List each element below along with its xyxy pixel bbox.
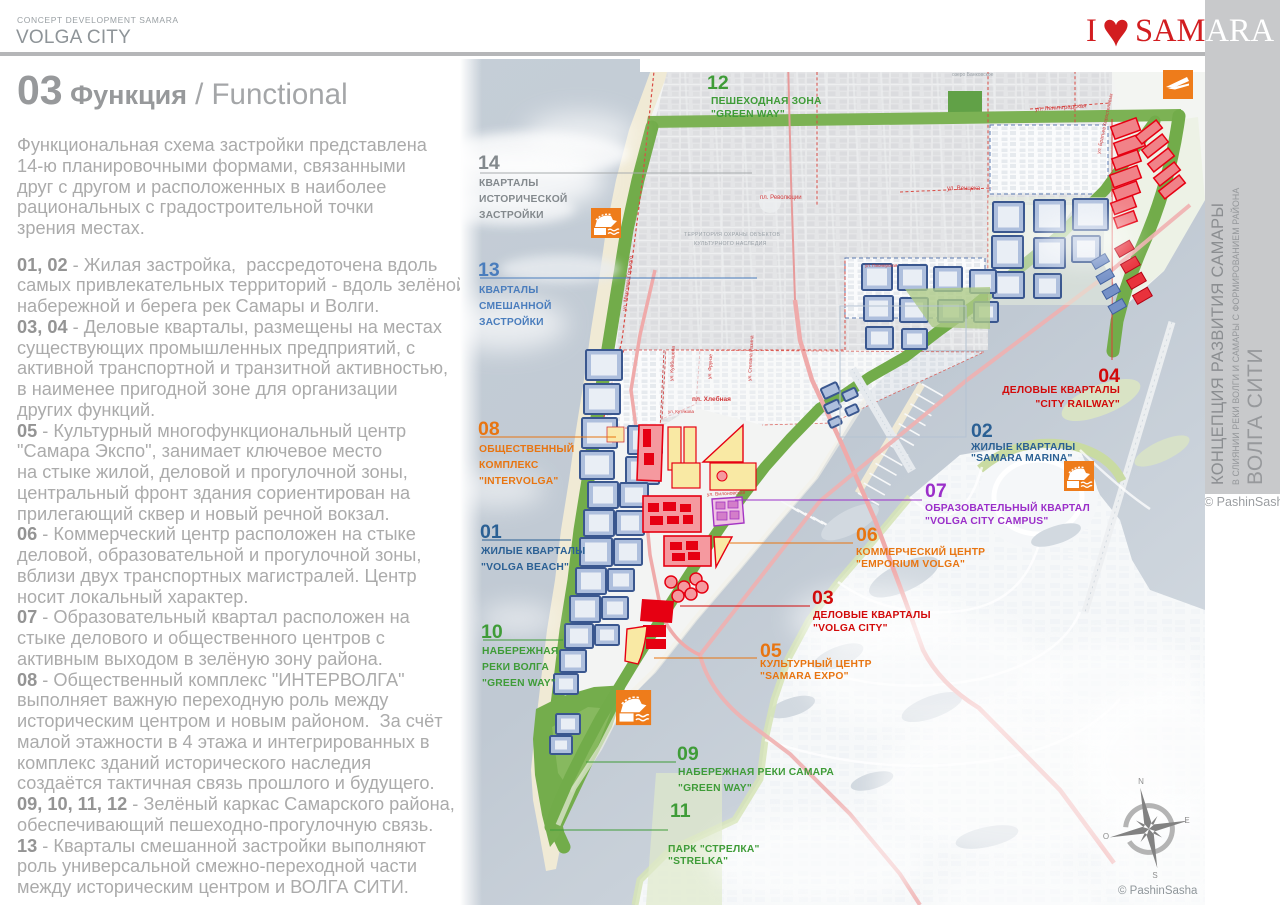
svg-text:02: 02 xyxy=(971,420,993,442)
svg-text:ул. Кутякова: ул. Кутякова xyxy=(668,409,695,414)
svg-text:ПАРК "СТРЕЛКА": ПАРК "СТРЕЛКА" xyxy=(668,844,760,855)
svg-text:РЕКИ ВОЛГА: РЕКИ ВОЛГА xyxy=(482,662,549,673)
svg-text:12: 12 xyxy=(707,72,729,94)
svg-text:07: 07 xyxy=(925,480,947,502)
svg-text:03: 03 xyxy=(812,587,834,609)
svg-text:10: 10 xyxy=(481,621,503,643)
svg-text:"GREEN WAY": "GREEN WAY" xyxy=(678,783,752,794)
svg-text:"INTERVOLGA": "INTERVOLGA" xyxy=(479,476,558,487)
svg-text:S: S xyxy=(1152,871,1157,880)
svg-text:НАБЕРЕЖНАЯ: НАБЕРЕЖНАЯ xyxy=(482,646,558,657)
svg-text:"VOLGA CITY CAMPUS": "VOLGA CITY CAMPUS" xyxy=(925,516,1048,527)
svg-text:09: 09 xyxy=(677,743,699,765)
svg-text:O: O xyxy=(1103,832,1109,841)
svg-text:"STRELKA": "STRELKA" xyxy=(668,856,728,867)
svg-text:"CITY RAILWAY": "CITY RAILWAY" xyxy=(1035,399,1120,410)
svg-text:01: 01 xyxy=(480,521,502,543)
svg-text:ТЕРРИТОРИЯ ОХРАНЫ ОБЪЕКТОВ: ТЕРРИТОРИЯ ОХРАНЫ ОБЪЕКТОВ xyxy=(684,232,781,238)
svg-text:ЖИЛЫЕ КВАРТАЛЫ: ЖИЛЫЕ КВАРТАЛЫ xyxy=(480,546,585,557)
svg-text:"EMPORIUM VOLGA": "EMPORIUM VOLGA" xyxy=(856,559,965,570)
svg-text:НАБЕРЕЖНАЯ РЕКИ САМАРА: НАБЕРЕЖНАЯ РЕКИ САМАРА xyxy=(678,767,834,778)
svg-text:14: 14 xyxy=(478,152,500,174)
svg-text:"SAMARA MARINA": "SAMARA MARINA" xyxy=(971,453,1073,464)
svg-text:КВАРТАЛЫ: КВАРТАЛЫ xyxy=(479,178,539,189)
svg-text:КОММЕРЧЕСКИЙ ЦЕНТР: КОММЕРЧЕСКИЙ ЦЕНТР xyxy=(856,545,985,558)
svg-text:ул. Венцека: ул. Венцека xyxy=(947,186,981,192)
svg-text:13: 13 xyxy=(478,259,500,281)
svg-text:ИСТОРИЧЕСКОЙ: ИСТОРИЧЕСКОЙ xyxy=(479,192,568,205)
svg-text:"GREEN WAY": "GREEN WAY" xyxy=(482,678,556,689)
svg-text:КУЛЬТУРНЫЙ ЦЕНТР: КУЛЬТУРНЫЙ ЦЕНТР xyxy=(760,657,872,670)
svg-text:"VOLGA BEACH": "VOLGA BEACH" xyxy=(481,562,569,573)
svg-text:пл. Хлебная: пл. Хлебная xyxy=(692,395,731,403)
svg-text:© PashinSasha: © PashinSasha xyxy=(1118,885,1198,897)
svg-text:08: 08 xyxy=(478,418,500,440)
svg-text:"VOLGA CITY": "VOLGA CITY" xyxy=(813,623,888,634)
svg-text:ЗАСТРОЙКИ: ЗАСТРОЙКИ xyxy=(479,315,544,328)
svg-text:КУЛЬТУРНОГО НАСЛЕДИЯ: КУЛЬТУРНОГО НАСЛЕДИЯ xyxy=(694,241,767,247)
svg-text:ЗАСТРОЙКИ: ЗАСТРОЙКИ xyxy=(479,208,544,221)
svg-text:N: N xyxy=(1138,777,1144,786)
svg-text:ДЕЛОВЫЕ КВАРТАЛЫ: ДЕЛОВЫЕ КВАРТАЛЫ xyxy=(1002,385,1120,396)
svg-text:ПЕШЕХОДНАЯ ЗОНА: ПЕШЕХОДНАЯ ЗОНА xyxy=(711,96,822,107)
svg-text:"SAMARA EXPO": "SAMARA EXPO" xyxy=(760,671,849,682)
svg-text:06: 06 xyxy=(856,524,878,546)
svg-text:ОБЩЕСТВЕННЫЙ: ОБЩЕСТВЕННЫЙ xyxy=(479,442,574,455)
svg-text:E: E xyxy=(1184,816,1189,825)
svg-text:04: 04 xyxy=(1098,365,1120,387)
svg-text:ЖИЛЫЕ КВАРТАЛЫ: ЖИЛЫЕ КВАРТАЛЫ xyxy=(970,442,1075,453)
svg-text:КОМПЛЕКС: КОМПЛЕКС xyxy=(479,460,539,471)
svg-text:ОБРАЗОВАТЕЛЬНЫЙ КВАРТАЛ: ОБРАЗОВАТЕЛЬНЫЙ КВАРТАЛ xyxy=(925,501,1090,514)
svg-text:СМЕШАННОЙ: СМЕШАННОЙ xyxy=(479,299,552,312)
svg-text:КВАРТАЛЫ: КВАРТАЛЫ xyxy=(479,285,539,296)
svg-text:11: 11 xyxy=(670,800,691,822)
svg-text:"GREEN WAY": "GREEN WAY" xyxy=(711,109,785,120)
svg-text:озеро Банковское: озеро Банковское xyxy=(952,72,994,78)
svg-text:пл. Революции: пл. Революции xyxy=(760,195,802,201)
svg-text:ДЕЛОВЫЕ КВАРТАЛЫ: ДЕЛОВЫЕ КВАРТАЛЫ xyxy=(813,610,931,621)
svg-text:ул. Пионерская: ул. Пионерская xyxy=(865,263,898,268)
